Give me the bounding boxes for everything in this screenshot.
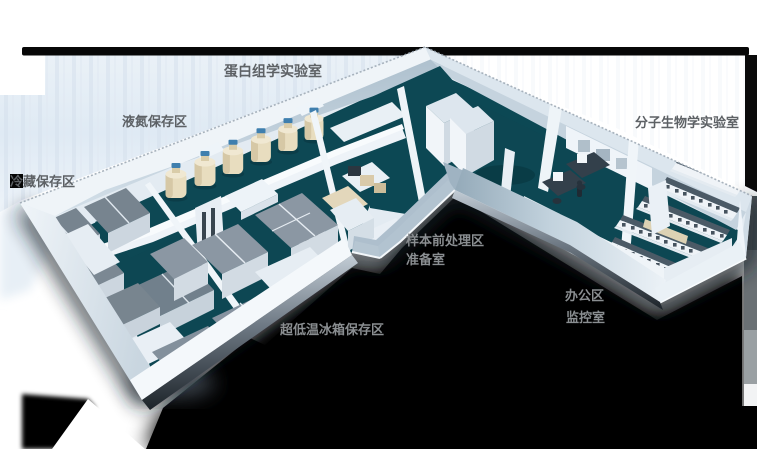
svg-text:样本前处理区: 样本前处理区 [406, 233, 484, 248]
svg-text:分子生物学实验室: 分子生物学实验室 [635, 115, 739, 130]
svg-text:准备室: 准备室 [406, 252, 445, 267]
svg-text:蛋白组学实验室: 蛋白组学实验室 [224, 63, 322, 79]
svg-text:监控室: 监控室 [566, 310, 605, 325]
svg-text:办公区: 办公区 [565, 288, 604, 303]
svg-text:液氮保存区: 液氮保存区 [122, 114, 187, 129]
svg-text:超低温冰箱保存区: 超低温冰箱保存区 [280, 322, 384, 337]
svg-text:冷藏保存区: 冷藏保存区 [10, 174, 75, 189]
